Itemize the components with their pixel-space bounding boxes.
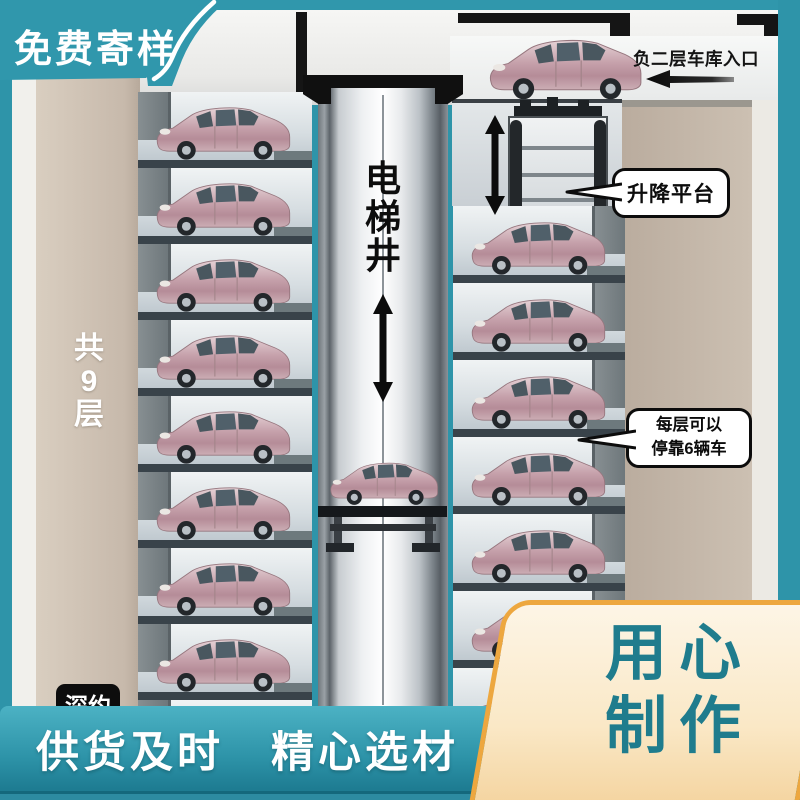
shaft-car-icon [322, 460, 444, 506]
parking-shelf [138, 464, 312, 472]
left-parking-column [138, 92, 312, 706]
lift-platform [508, 116, 608, 220]
parking-level [138, 168, 312, 244]
bubble-tail [564, 182, 622, 202]
parking-level [453, 514, 625, 591]
shelf-end-block [587, 343, 625, 352]
craft-box-label: 用心 制作 [568, 618, 790, 763]
shaft-car-platform [318, 506, 447, 517]
parking-shelf [453, 352, 625, 360]
lift-rail-left [510, 120, 522, 218]
craft-line1: 用心 [568, 618, 790, 691]
shaft-label: 电梯井 [356, 160, 410, 276]
capacity-bubble-line2: 停靠6辆车 [651, 438, 726, 462]
lift-machinery [514, 106, 602, 116]
parking-level [138, 320, 312, 396]
parking-level [138, 92, 312, 168]
shelf-end-block [587, 574, 625, 583]
ceiling-beam [610, 13, 630, 37]
lift-platform-bubble: 升降平台 [612, 168, 730, 218]
lift-platform-bubble-label: 升降平台 [627, 178, 715, 208]
parking-level [138, 244, 312, 320]
capacity-bubble: 每层可以 停靠6辆车 [626, 408, 752, 468]
left-arrow-icon [644, 68, 736, 90]
lift-slat [510, 173, 606, 177]
parking-level [453, 206, 625, 283]
lift-slat [510, 146, 606, 150]
truss-foot [412, 543, 440, 552]
parking-shelf [453, 506, 625, 514]
lift-knob [520, 100, 531, 107]
parking-shelf [138, 312, 312, 320]
parking-shelf [138, 236, 312, 244]
bubble-tail [576, 428, 636, 450]
road-edge-light [622, 100, 752, 107]
parking-shelf [138, 540, 312, 548]
truss-bar [330, 524, 436, 531]
poster: 负二层车库入口 [0, 0, 800, 800]
left-white-wall [12, 10, 36, 706]
entrance-car-icon [478, 36, 650, 101]
truss-foot [326, 543, 354, 552]
shelf-end-block [587, 266, 625, 275]
shelf-end-block [274, 151, 312, 160]
shelf-end-block [274, 303, 312, 312]
parking-level [138, 624, 312, 700]
parking-level [138, 548, 312, 624]
shelf-end-block [274, 227, 312, 236]
parking-level [453, 283, 625, 360]
shelf-end-block [587, 497, 625, 506]
shelf-end-block [274, 683, 312, 692]
craft-line2: 制作 [568, 691, 790, 764]
lift-knob [578, 100, 589, 107]
parking-level [453, 360, 625, 437]
shelf-end-block [274, 607, 312, 616]
capacity-bubble-line1: 每层可以 [656, 414, 722, 438]
shelf-end-block [274, 455, 312, 464]
parking-level [138, 472, 312, 548]
parking-shelf [453, 275, 625, 283]
ceiling-beam [458, 13, 622, 23]
lift-rail-right [594, 120, 606, 218]
frame-left [0, 0, 12, 800]
parking-shelf [138, 692, 312, 700]
up-down-arrow-icon [371, 293, 395, 403]
parking-shelf [138, 160, 312, 168]
parking-shelf [138, 388, 312, 396]
free-sample-label: 免费寄样 [14, 18, 178, 73]
parking-level [138, 396, 312, 472]
floors-label: 共9层 [66, 332, 112, 431]
parking-shelf [453, 583, 625, 591]
parking-shelf [138, 616, 312, 624]
up-down-arrow-icon [484, 114, 506, 216]
shelf-end-block [274, 531, 312, 540]
ceiling-beam [737, 14, 778, 25]
shelf-end-block [274, 379, 312, 388]
bottom-banner-label: 供货及时 精心选材 [36, 718, 459, 780]
